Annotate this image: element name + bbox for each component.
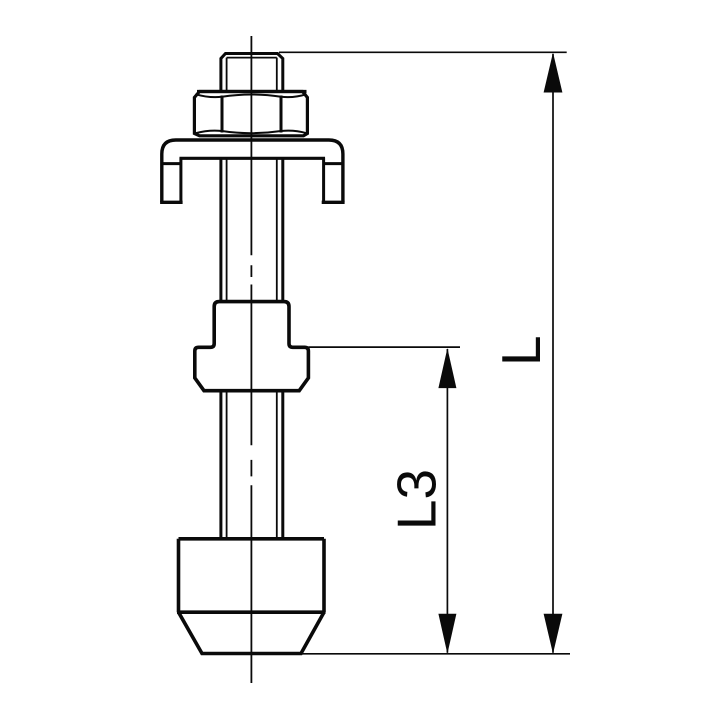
svg-text:L3: L3: [386, 469, 448, 530]
svg-text:L: L: [490, 335, 552, 366]
